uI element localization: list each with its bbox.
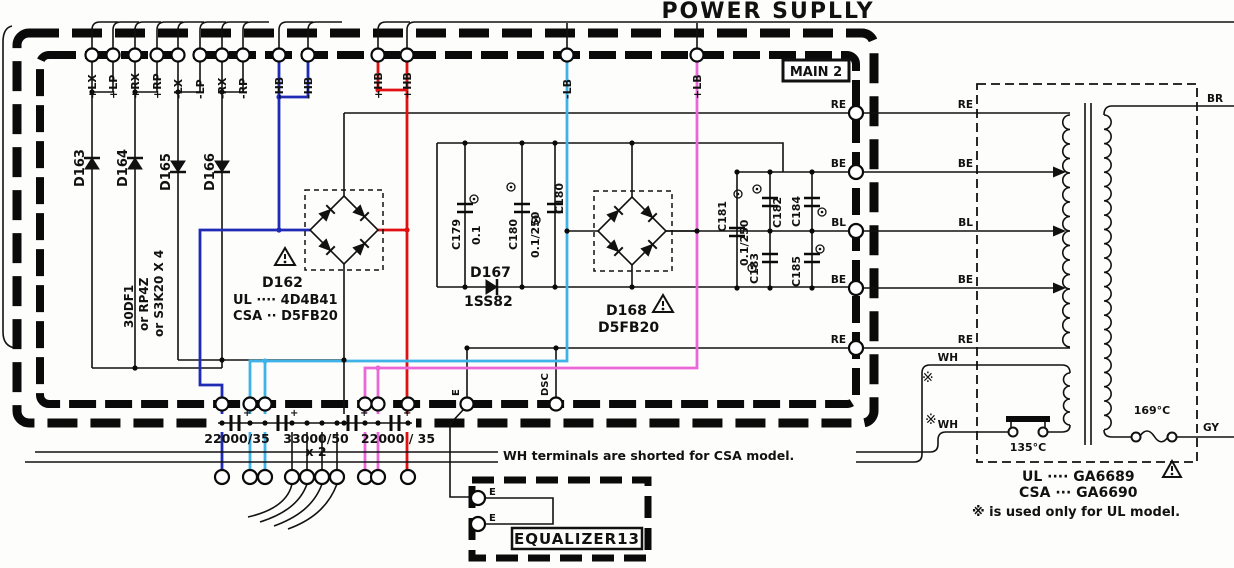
diode-alt-part: or S3K20 X 4 [152,250,166,337]
junction-dots [89,87,814,425]
cap-value: 0.1/250 [529,211,542,258]
equalizer-name: EQUALIZER13 [514,530,640,548]
xfmr-primary-label: BE [958,274,973,286]
filter-cap-value: 22000 / 35 [361,431,435,446]
circle-dot-icon [818,208,826,216]
transformer-core [1085,103,1091,445]
terminal-label: -RX [216,77,229,99]
circle-dot-icon [470,195,478,203]
page-title: POWER SUPLLY [661,0,874,24]
wh-terminal-label: WH [938,352,958,364]
thermal-fuse-icon [1132,431,1177,442]
d167-part: 1SS82 [464,294,513,310]
diode-label: D164 [116,149,131,187]
e-terminal-label: E [451,389,462,396]
secondary-terminal-label: RE [831,334,846,346]
circle-dot-icon [816,245,824,253]
terminal-label: -LX [172,78,185,99]
terminal-label: +HB [372,72,385,99]
cap-label: C179 [450,219,463,250]
secondary-terminal-label: RE [831,99,846,111]
terminal-label: -RP [237,78,250,99]
cap-label: C181 [716,201,729,232]
terminal-label: -LB [561,79,574,99]
cap-label: C183 [748,253,761,284]
xfmr-primary-label: BL [958,217,973,229]
plus-sign: + [290,408,298,419]
asterisk-mark: ※ [922,370,934,386]
thermal-fuse-label: 169°C [1134,404,1171,417]
filter-cap-value: 22000/35 [204,431,269,446]
diode-label: D163 [73,149,88,187]
xfmr-primary-label: RE [958,99,973,111]
schematic-canvas: POWER SUPLLY MAIN 2 +LX +LP +RX +RP -LX … [0,0,1234,568]
terminal-label: +RP [151,73,164,99]
asterisk-mark: ※ [925,412,937,428]
cap-label: C180 [553,183,566,214]
terminal-label: +LP [107,75,120,99]
xfmr-ul-part: UL ···· GA6689 [1022,469,1135,485]
d168-name: D168 [606,303,647,319]
diode-label: D165 [159,153,174,191]
circle-dot-icon [734,190,742,198]
bridge-rectifier-d168 [594,191,672,271]
d162-ul-part: UL ···· 4D4B41 [233,293,338,308]
lb-positive-magenta-wire [365,62,697,470]
secondary-terminal-label: BE [831,274,846,286]
equalizer-terminal-label: E [489,513,496,524]
terminal-label: +RX [129,72,142,99]
diode-alt-part: 30DF1 [122,285,136,328]
secondary-terminal-label: BE [831,158,846,170]
filter-cap-qty: x 2 [305,444,326,459]
thermal-switch-label: 135°C [1010,441,1047,454]
circle-dot-icon [753,185,761,193]
wh-terminal-label: WH [938,419,958,431]
transformer [863,84,1234,462]
primary-aux-winding [1064,373,1071,425]
d167-name: D167 [470,265,511,281]
plus-sign: + [360,408,368,419]
plus-sign: + [403,408,411,419]
terminal-label: +LB [691,74,704,99]
wh-note: WH terminals are shorted for CSA model. [503,448,794,463]
dsc-terminal-label: DSC [540,373,551,396]
terminal-label: -HB [302,77,315,99]
power-supply-schematic: POWER SUPLLY MAIN 2 +LX +LP +RX +RP -LX … [0,0,1234,568]
thermal-switch-icon [1006,416,1050,437]
d162-name: D162 [262,275,303,291]
diode-d167-icon [486,279,497,295]
cap-label: C182 [771,197,784,228]
d168-part: D5FB20 [598,320,659,336]
cap-value: 0.1 [470,226,483,246]
circle-dot-icon [507,183,515,191]
board-name: MAIN 2 [790,65,842,80]
warning-triangle-icon [1163,461,1181,477]
labels: POWER SUPLLY MAIN 2 +LX +LP +RX +RP -LX … [73,0,1223,548]
warning-triangle-icon [653,295,673,312]
equalizer-terminal-label: E [489,487,496,498]
terminal-label: +HB [401,72,414,99]
diode-alt-part: or RP4Z [137,277,151,331]
secondary-winding [1104,115,1111,430]
diode-label: D166 [203,153,218,191]
xfmr-secondary-label: GY [1203,422,1219,434]
cap-label: C185 [790,256,803,287]
cap-label: C184 [790,196,803,227]
terminal-label: -HB [273,77,286,99]
terminal-label: +LX [86,74,99,99]
secondary-terminal-label: BL [831,217,846,229]
d162-csa-part: CSA ·· D5FB20 [233,309,338,324]
xfmr-primary-label: BE [958,158,973,170]
main2-inner-border [40,55,856,404]
xfmr-primary-label: RE [958,334,973,346]
terminal-label: -LP [194,79,207,99]
xfmr-secondary-label: BR [1207,93,1223,105]
xfmr-csa-part: CSA ··· GA6690 [1019,485,1138,501]
warning-triangle-icon [275,248,295,265]
xfmr-note: ※ is used only for UL model. [972,505,1180,520]
bridge-rectifier-d162 [305,190,383,270]
cap-label: C180 [507,219,520,250]
plus-sign: + [243,408,251,419]
